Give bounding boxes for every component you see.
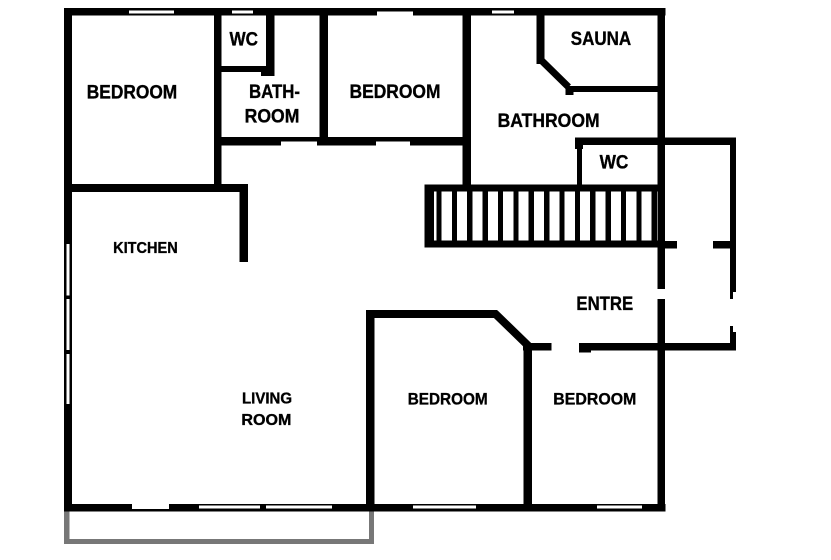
svg-text:BEDROOM: BEDROOM (87, 82, 178, 103)
svg-text:ROOM: ROOM (241, 412, 291, 429)
svg-text:SAUNA: SAUNA (571, 29, 632, 50)
svg-text:WC: WC (600, 153, 629, 174)
svg-text:BEDROOM: BEDROOM (408, 390, 488, 409)
svg-text:ENTRE: ENTRE (576, 294, 633, 315)
svg-text:BATH-: BATH- (249, 82, 300, 103)
svg-text:ROOM: ROOM (245, 106, 300, 127)
svg-text:LIVING: LIVING (242, 390, 292, 407)
svg-text:BEDROOM: BEDROOM (553, 390, 636, 409)
svg-text:KITCHEN: KITCHEN (113, 240, 178, 257)
svg-text:BATHROOM: BATHROOM (498, 111, 600, 132)
svg-text:BEDROOM: BEDROOM (350, 82, 441, 103)
svg-text:WC: WC (229, 29, 258, 50)
